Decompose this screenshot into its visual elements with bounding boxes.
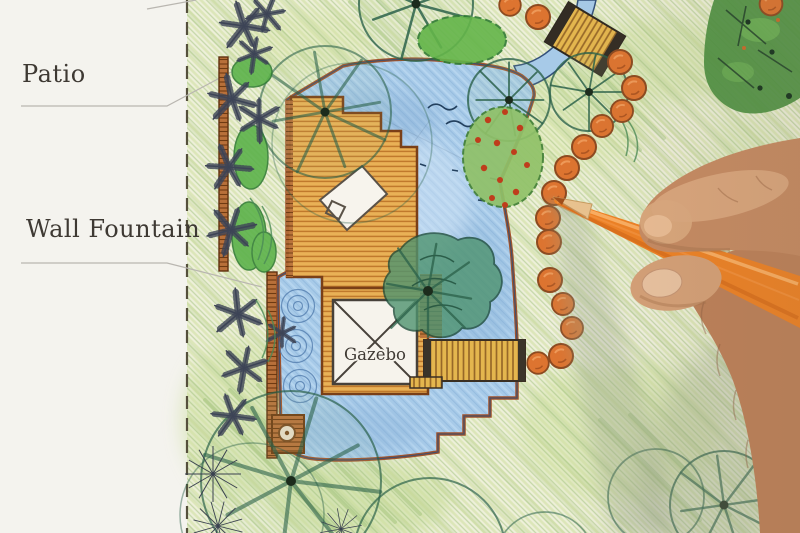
vignette	[0, 0, 800, 533]
garden-plan-photo: Patio Wall Fountain Gazebo	[0, 0, 800, 533]
